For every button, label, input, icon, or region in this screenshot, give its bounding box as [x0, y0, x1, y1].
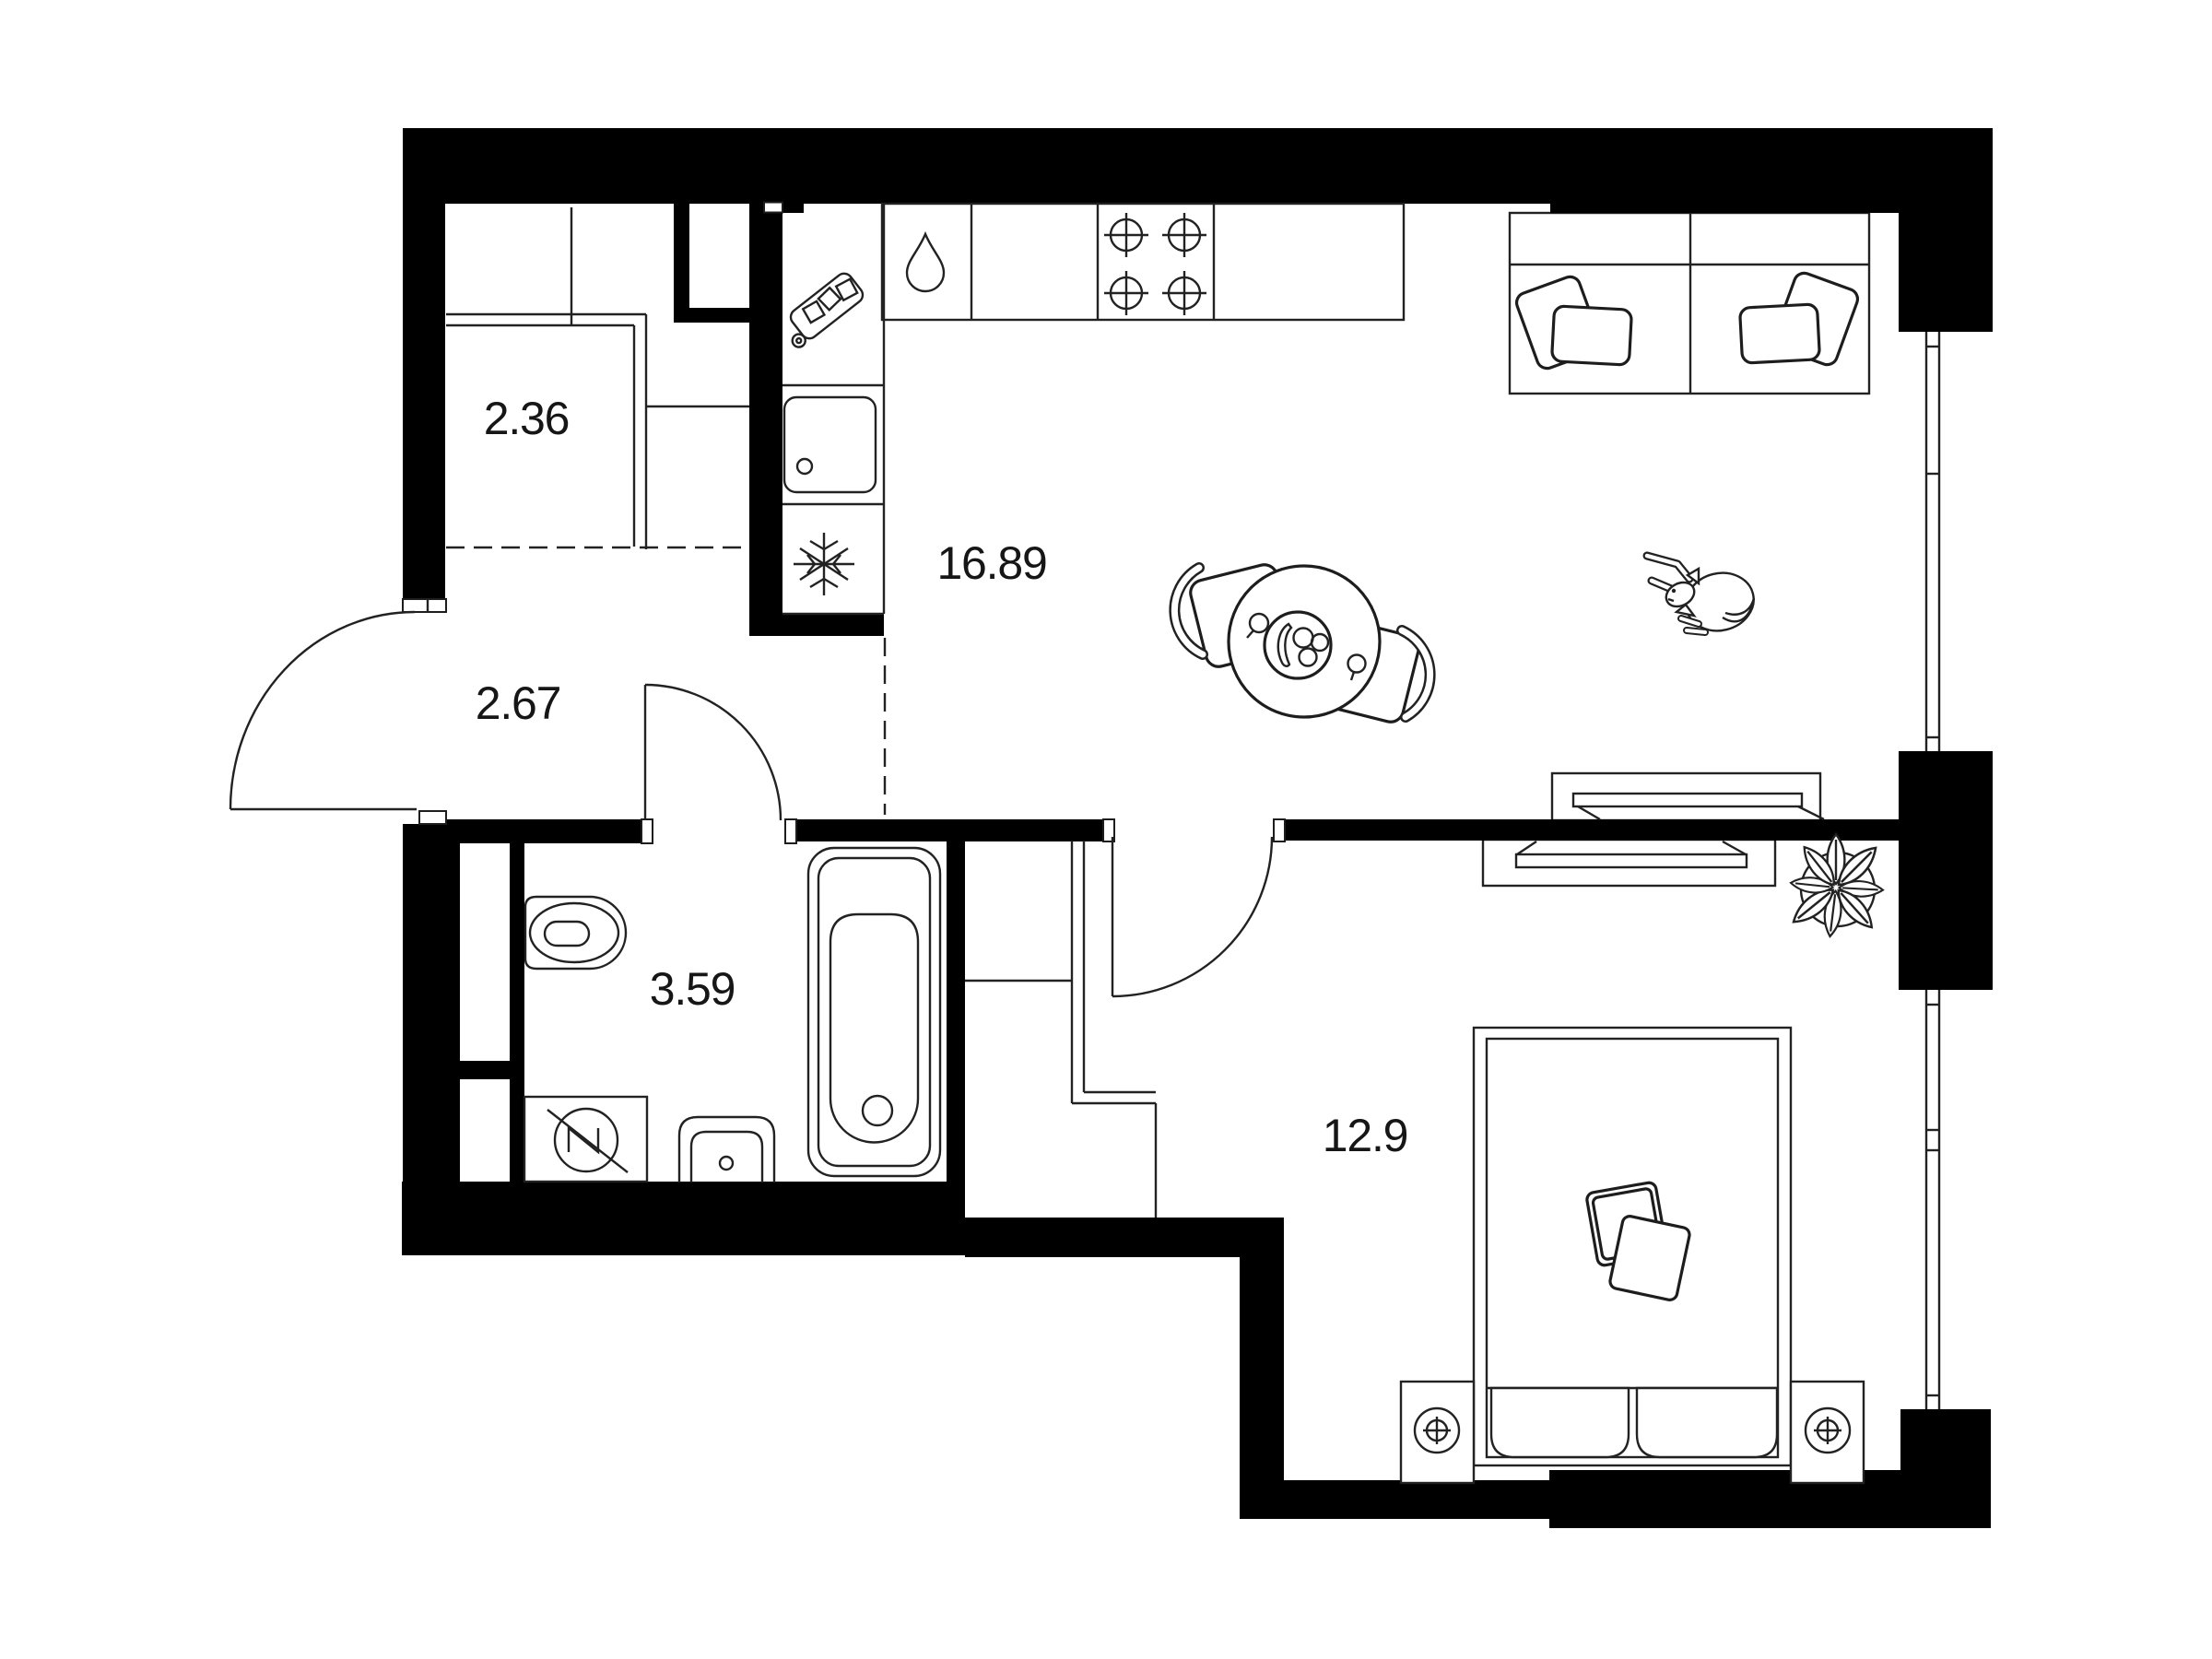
svg-text:2.67: 2.67 — [476, 677, 561, 729]
svg-text:2.36: 2.36 — [484, 393, 570, 444]
svg-text:12.9: 12.9 — [1323, 1110, 1408, 1161]
svg-text:16.89: 16.89 — [936, 537, 1046, 589]
svg-text:3.59: 3.59 — [650, 963, 735, 1015]
